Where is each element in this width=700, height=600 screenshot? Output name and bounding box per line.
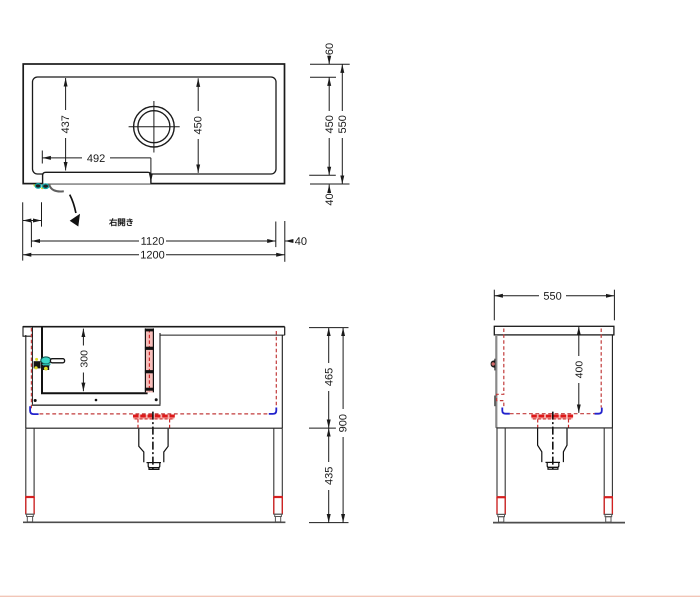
svg-text:1200: 1200 bbox=[140, 249, 164, 261]
svg-text:465: 465 bbox=[323, 368, 335, 386]
svg-text:300: 300 bbox=[78, 350, 90, 368]
svg-text:400: 400 bbox=[573, 361, 585, 379]
svg-text:437: 437 bbox=[60, 115, 72, 133]
svg-text:492: 492 bbox=[87, 153, 105, 165]
svg-text:右開き: 右開き bbox=[108, 217, 134, 227]
svg-text:550: 550 bbox=[543, 291, 561, 303]
svg-text:40: 40 bbox=[295, 236, 307, 248]
svg-text:40: 40 bbox=[324, 193, 336, 205]
svg-text:450: 450 bbox=[193, 116, 205, 134]
svg-text:435: 435 bbox=[323, 467, 335, 485]
svg-text:60: 60 bbox=[324, 43, 336, 55]
svg-text:900: 900 bbox=[338, 414, 350, 432]
svg-text:1120: 1120 bbox=[141, 236, 165, 248]
svg-text:450: 450 bbox=[324, 115, 336, 133]
svg-text:550: 550 bbox=[337, 115, 349, 133]
